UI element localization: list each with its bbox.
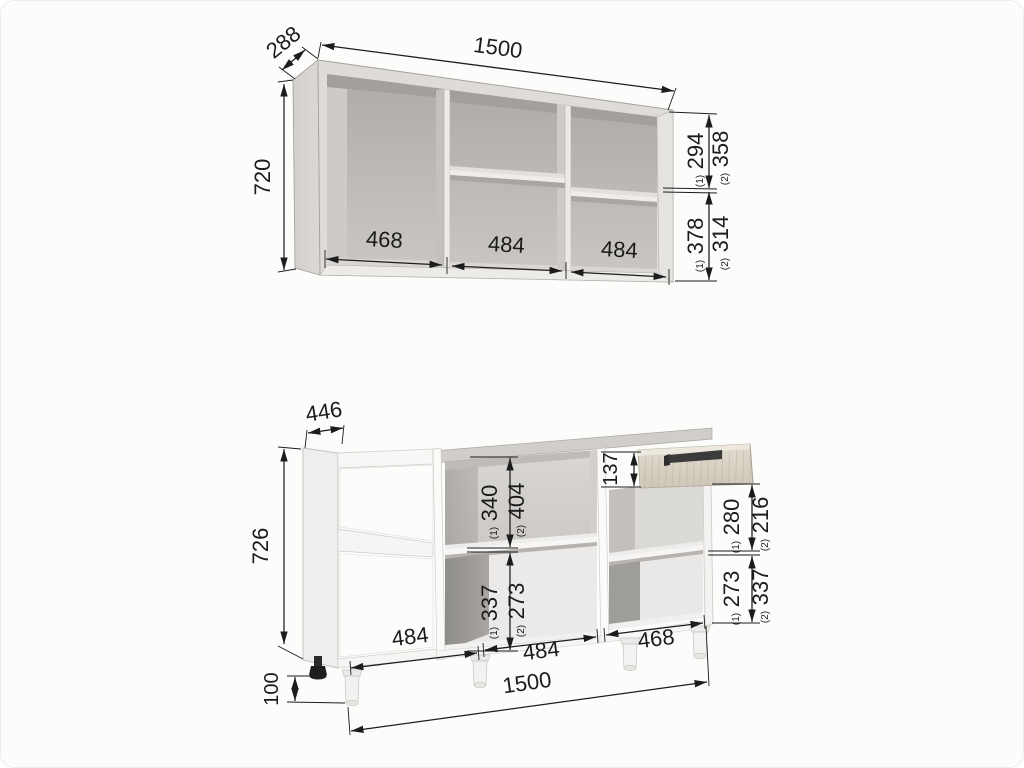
base-middle-top-dim: 340 [477,485,502,522]
cabinet-leg [342,670,362,706]
base-right-lower-compartment [609,554,703,630]
drawer-height-dim: 137 [600,452,622,485]
base-compartment-dim: 468 [636,624,675,653]
wall-variant-sup: (2) [720,258,731,270]
wall-variant-sup: (2) [720,173,731,185]
base-left-side-panel [303,448,338,668]
base-right-bottom-dim: 337 [748,569,773,606]
base-variant-sup: (2) [760,539,771,551]
wall-variant-sup: (1) [695,260,706,272]
base-compartment-dim: 484 [521,636,560,665]
wall-left-side-panel [293,60,320,275]
base-right-side-panel [703,482,713,626]
wall-right-top-dim: 294 [683,133,708,170]
wall-compartment-dim: 484 [487,231,525,258]
wall-compartment-dim: 468 [365,226,403,253]
drawer-front [638,444,753,488]
base-variant-sup: (1) [731,613,742,625]
base-leg-height-dim: 100 [261,672,283,705]
base-variant-sup: (1) [489,627,500,639]
base-depth-dim: 446 [304,396,344,426]
base-width-dim: 1500 [501,667,553,699]
cabinet-leg [470,655,490,688]
base-variant-sup: (2) [516,525,527,537]
base-height-dim: 726 [248,528,273,565]
base-variant-sup: (2) [760,611,771,623]
wall-height-dim: 720 [250,159,275,196]
base-right-bottom-dim: 273 [719,571,744,608]
wall-right-bottom-dim: 314 [708,216,733,253]
wall-depth-dim: 288 [261,21,305,64]
wall-divider [565,105,571,272]
cabinet-dimension-drawing: 288 1500 720 468 484 484 (1) 294 (2) 358… [0,0,1024,768]
base-middle-top-dim: 404 [504,483,529,520]
wall-width-dim: 1500 [472,32,524,63]
base-middle-bottom-dim: 337 [477,585,502,622]
wall-compartment-dim: 484 [600,236,638,263]
drawing-canvas: 288 1500 720 468 484 484 (1) 294 (2) 358… [0,0,1024,768]
base-open-hole [340,465,433,541]
base-right-top-dim: 216 [748,497,773,534]
base-right-top-dim: 280 [719,499,744,536]
wall-right-bottom-dim: 378 [683,218,708,255]
wall-right-top-dim: 358 [708,131,733,168]
base-top-rail [338,449,433,468]
base-compartment-dim: 484 [390,622,429,651]
wall-divider [444,89,450,268]
base-variant-sup: (1) [489,527,500,539]
wall-variant-sup: (1) [695,175,706,187]
base-variant-sup: (1) [731,541,742,553]
cabinet-leg [620,638,640,671]
base-divider [433,448,445,660]
base-middle-bottom-dim: 273 [504,583,529,620]
wall-right-panel-edge [657,110,673,282]
base-variant-sup: (2) [516,625,527,637]
